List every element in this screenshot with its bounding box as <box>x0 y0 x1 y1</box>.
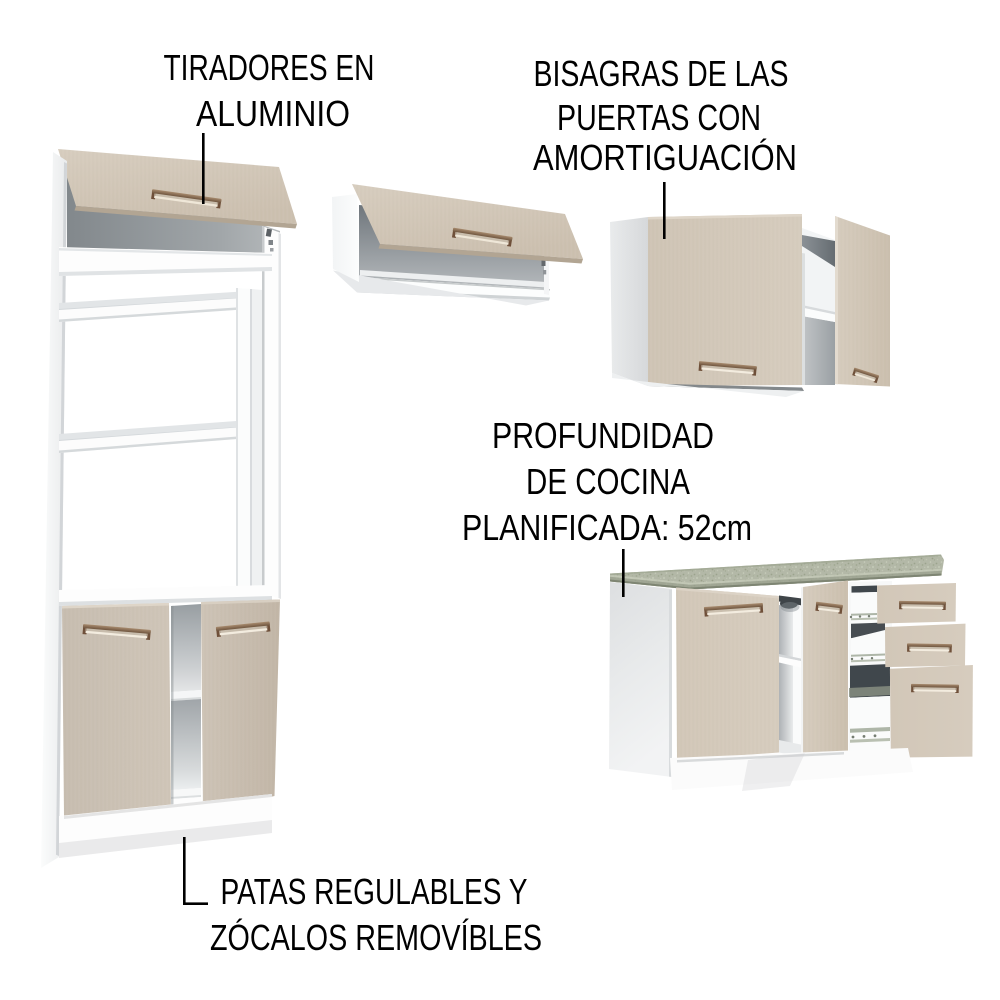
svg-text:AMORTIGUACIÓN: AMORTIGUACIÓN <box>533 137 797 178</box>
svg-text:PLANIFICADA: 52cm: PLANIFICADA: 52cm <box>462 507 752 548</box>
svg-text:ALUMINIO: ALUMINIO <box>196 93 350 134</box>
svg-text:PATAS REGULABLES Y: PATAS REGULABLES Y <box>221 871 528 912</box>
svg-text:DE COCINA: DE COCINA <box>526 461 690 502</box>
svg-text:PROFUNDIDAD: PROFUNDIDAD <box>492 415 714 456</box>
svg-text:ZÓCALOS REMOVÍBLES: ZÓCALOS REMOVÍBLES <box>210 917 542 958</box>
svg-text:BISAGRAS DE LAS: BISAGRAS DE LAS <box>534 53 789 94</box>
svg-text:PUERTAS CON: PUERTAS CON <box>557 97 761 138</box>
svg-text:TIRADORES EN: TIRADORES EN <box>164 47 375 88</box>
